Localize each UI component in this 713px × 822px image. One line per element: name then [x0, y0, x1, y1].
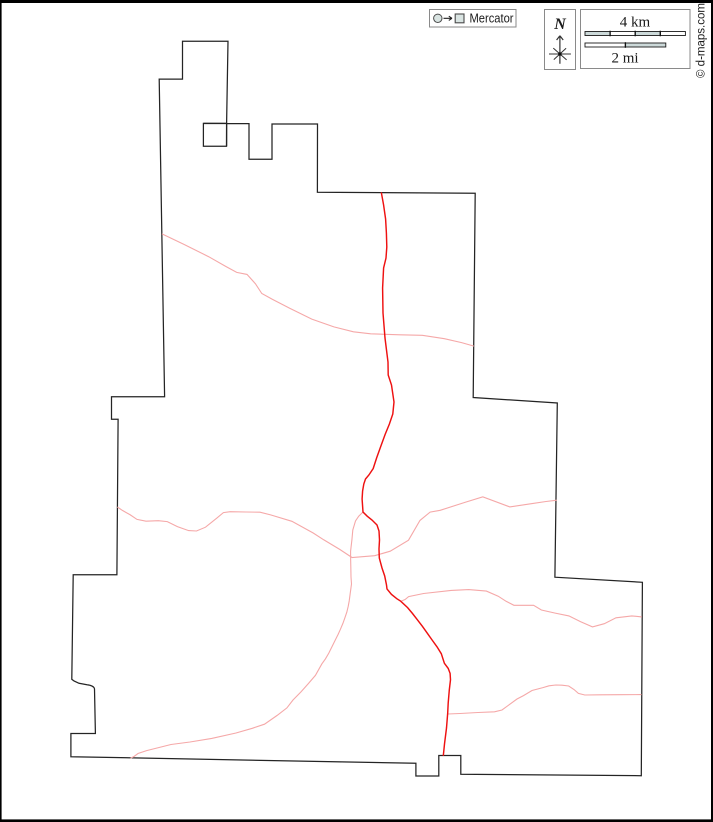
svg-text:N: N [553, 16, 567, 33]
svg-text:© d-maps.com: © d-maps.com [696, 3, 708, 78]
svg-text:Mercator: Mercator [470, 12, 514, 26]
svg-text:4 km: 4 km [620, 15, 651, 31]
svg-text:2 mi: 2 mi [611, 51, 638, 67]
